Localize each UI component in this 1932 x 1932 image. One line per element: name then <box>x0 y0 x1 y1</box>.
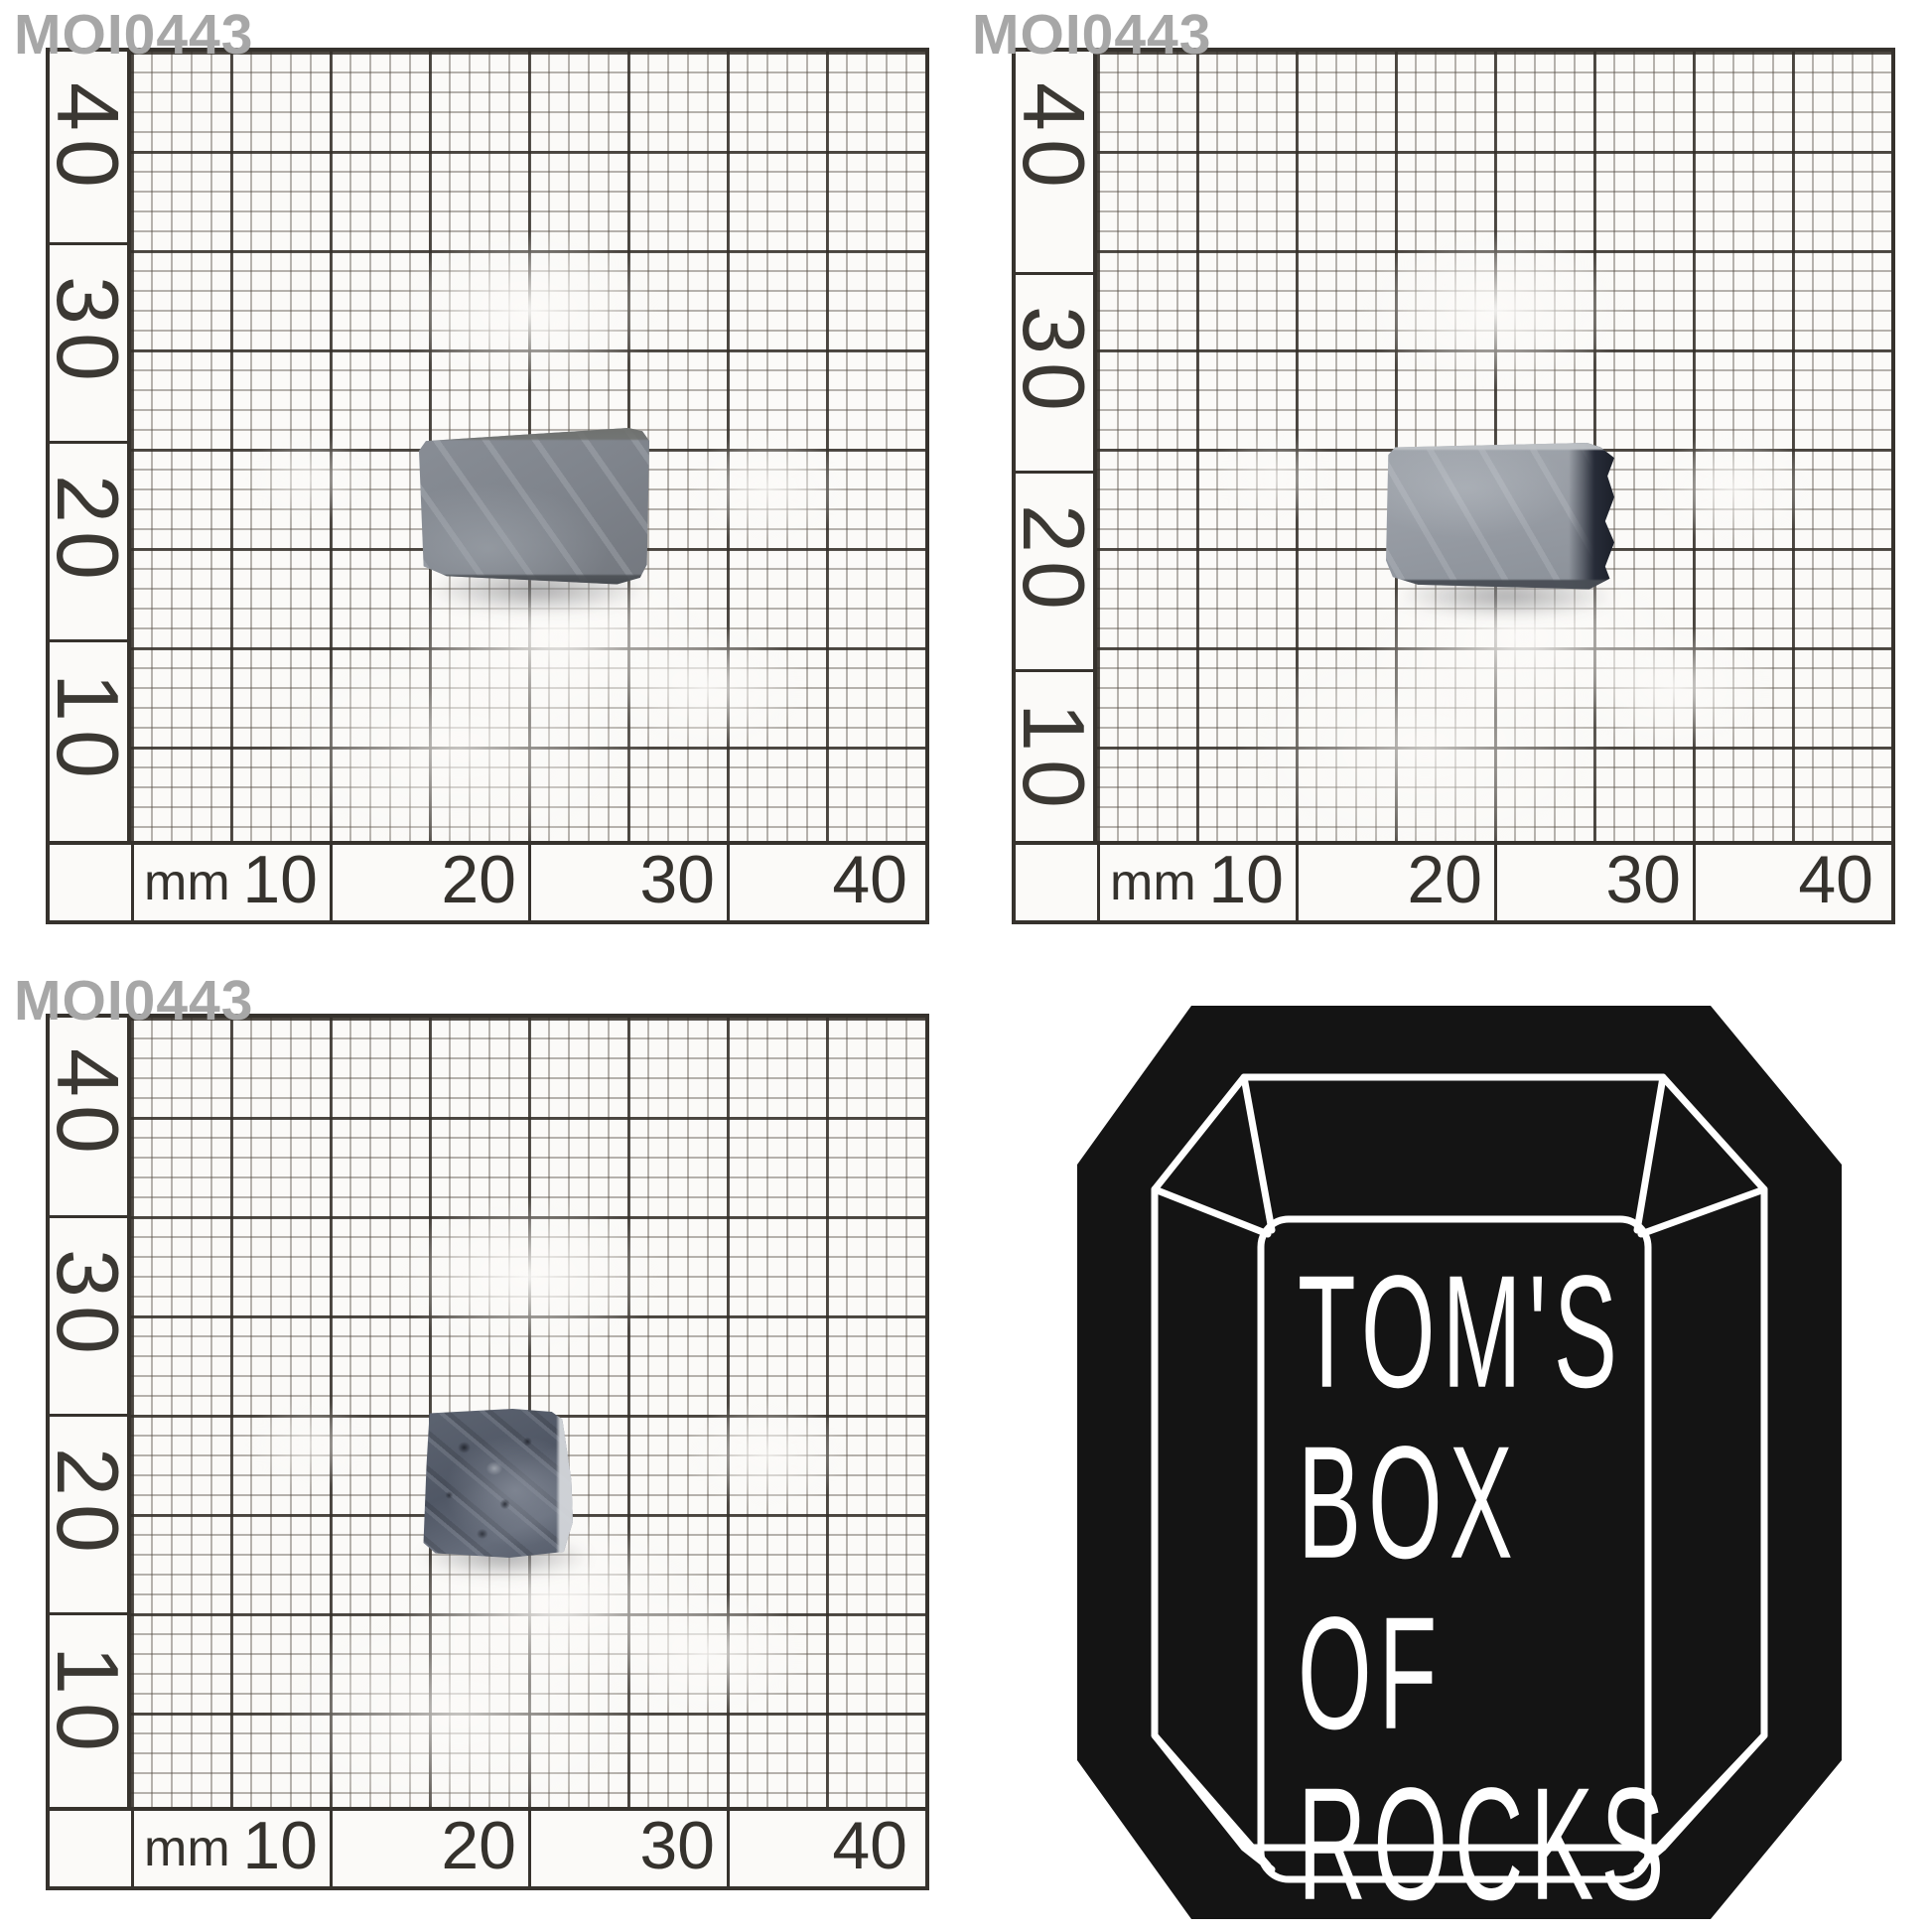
x-axis-label: 40 <box>832 841 907 918</box>
product-photo-collage: MOI0443 40 30 20 10 mm 10 20 30 <box>0 0 1932 1932</box>
rock-specimen <box>419 428 649 591</box>
x-axis-cell: mm 10 <box>1097 845 1296 920</box>
x-axis-cell: 40 <box>1693 845 1885 920</box>
y-axis-label: 20 <box>49 452 126 611</box>
y-axis-label: 40 <box>49 1026 126 1184</box>
brand-logo-panel: TOM'S BOX OF ROCKS <box>966 966 1932 1932</box>
x-axis-cell: 20 <box>330 845 528 920</box>
mm-grid-paper <box>1097 52 1891 841</box>
x-axis-label: 20 <box>1407 841 1482 918</box>
y-axis-segment: 30 <box>50 245 127 444</box>
x-axis: mm 10 20 30 40 <box>50 841 925 920</box>
x-axis-label: 20 <box>441 1807 516 1884</box>
emerald-cut-gem-logo: TOM'S BOX OF ROCKS <box>1077 1006 1842 1919</box>
y-axis-label: 20 <box>1015 482 1092 640</box>
x-axis-label: 10 <box>242 1807 318 1884</box>
y-axis: 40 30 20 10 <box>1016 52 1097 841</box>
y-axis-segment: 10 <box>1016 672 1093 841</box>
y-axis-segment: 40 <box>50 1018 127 1218</box>
x-axis-cell: 20 <box>330 1811 528 1886</box>
y-axis-segment: 20 <box>50 444 127 642</box>
y-axis: 40 30 20 10 <box>50 1018 131 1807</box>
y-axis-label: 10 <box>49 1623 126 1782</box>
mm-scale-card: 40 30 20 10 mm 10 20 30 40 <box>46 48 929 924</box>
x-axis-cell: 40 <box>727 1811 919 1886</box>
y-axis-label: 40 <box>1015 60 1092 218</box>
rock-specimen <box>422 1409 573 1558</box>
mm-grid-paper <box>131 1018 925 1807</box>
unit-label: mm <box>144 853 230 912</box>
brand-word: ROCKS <box>1298 1762 1655 1932</box>
x-axis: mm 10 20 30 40 <box>1016 841 1891 920</box>
x-axis-cell: 40 <box>727 845 919 920</box>
y-axis-label: 40 <box>49 60 126 218</box>
specimen-photo-reverse-view: MOI0443 40 30 20 10 mm 10 20 30 <box>966 0 1932 966</box>
x-axis-cell: mm 10 <box>131 1811 330 1886</box>
x-axis-label: 30 <box>1605 841 1681 918</box>
x-axis-corner-cell <box>50 845 131 920</box>
y-axis-label: 30 <box>49 1226 126 1385</box>
mm-grid-paper <box>131 52 925 841</box>
y-axis-segment: 30 <box>50 1218 127 1417</box>
x-axis-cell: 20 <box>1296 845 1494 920</box>
x-axis-cell: mm 10 <box>131 845 330 920</box>
y-axis-label: 30 <box>1015 283 1092 442</box>
specimen-photo-side-view: MOI0443 40 30 20 10 mm 10 20 30 <box>0 966 966 1932</box>
mm-scale-card: 40 30 20 10 mm 10 20 30 40 <box>1012 48 1895 924</box>
specimen-id-watermark: MOI0443 <box>14 2 253 68</box>
y-axis-segment: 20 <box>50 1417 127 1615</box>
x-axis-label: 10 <box>242 841 318 918</box>
mm-scale-card: 40 30 20 10 mm 10 20 30 40 <box>46 1014 929 1890</box>
y-axis-segment: 20 <box>1016 474 1093 672</box>
x-axis-label: 40 <box>832 1807 907 1884</box>
x-axis: mm 10 20 30 40 <box>50 1807 925 1886</box>
x-axis-corner-cell <box>1016 845 1097 920</box>
unit-label: mm <box>144 1819 230 1878</box>
x-axis-label: 30 <box>639 841 715 918</box>
x-axis-cell: 30 <box>1494 845 1693 920</box>
y-axis-label: 10 <box>1015 680 1092 839</box>
brand-wordmark: TOM'S BOX OF ROCKS <box>1298 1250 1655 1932</box>
x-axis-cell: 30 <box>528 1811 727 1886</box>
y-axis-segment: 40 <box>1016 52 1093 275</box>
x-axis-corner-cell <box>50 1811 131 1886</box>
y-axis-label: 10 <box>49 650 126 809</box>
y-axis-segment: 30 <box>1016 275 1093 474</box>
y-axis-segment: 10 <box>50 1615 127 1807</box>
x-axis-cell: 30 <box>528 845 727 920</box>
x-axis-label: 10 <box>1208 841 1284 918</box>
y-axis: 40 30 20 10 <box>50 52 131 841</box>
y-axis-label: 30 <box>49 253 126 412</box>
rock-specimen <box>1386 443 1614 594</box>
x-axis-label: 40 <box>1798 841 1873 918</box>
unit-label: mm <box>1110 853 1196 912</box>
y-axis-segment: 10 <box>50 642 127 841</box>
y-axis-label: 20 <box>49 1425 126 1584</box>
y-axis-segment: 40 <box>50 52 127 245</box>
specimen-id-watermark: MOI0443 <box>972 2 1211 68</box>
specimen-photo-top-view: MOI0443 40 30 20 10 mm 10 20 30 <box>0 0 966 966</box>
x-axis-label: 30 <box>639 1807 715 1884</box>
specimen-id-watermark: MOI0443 <box>14 968 253 1034</box>
x-axis-label: 20 <box>441 841 516 918</box>
